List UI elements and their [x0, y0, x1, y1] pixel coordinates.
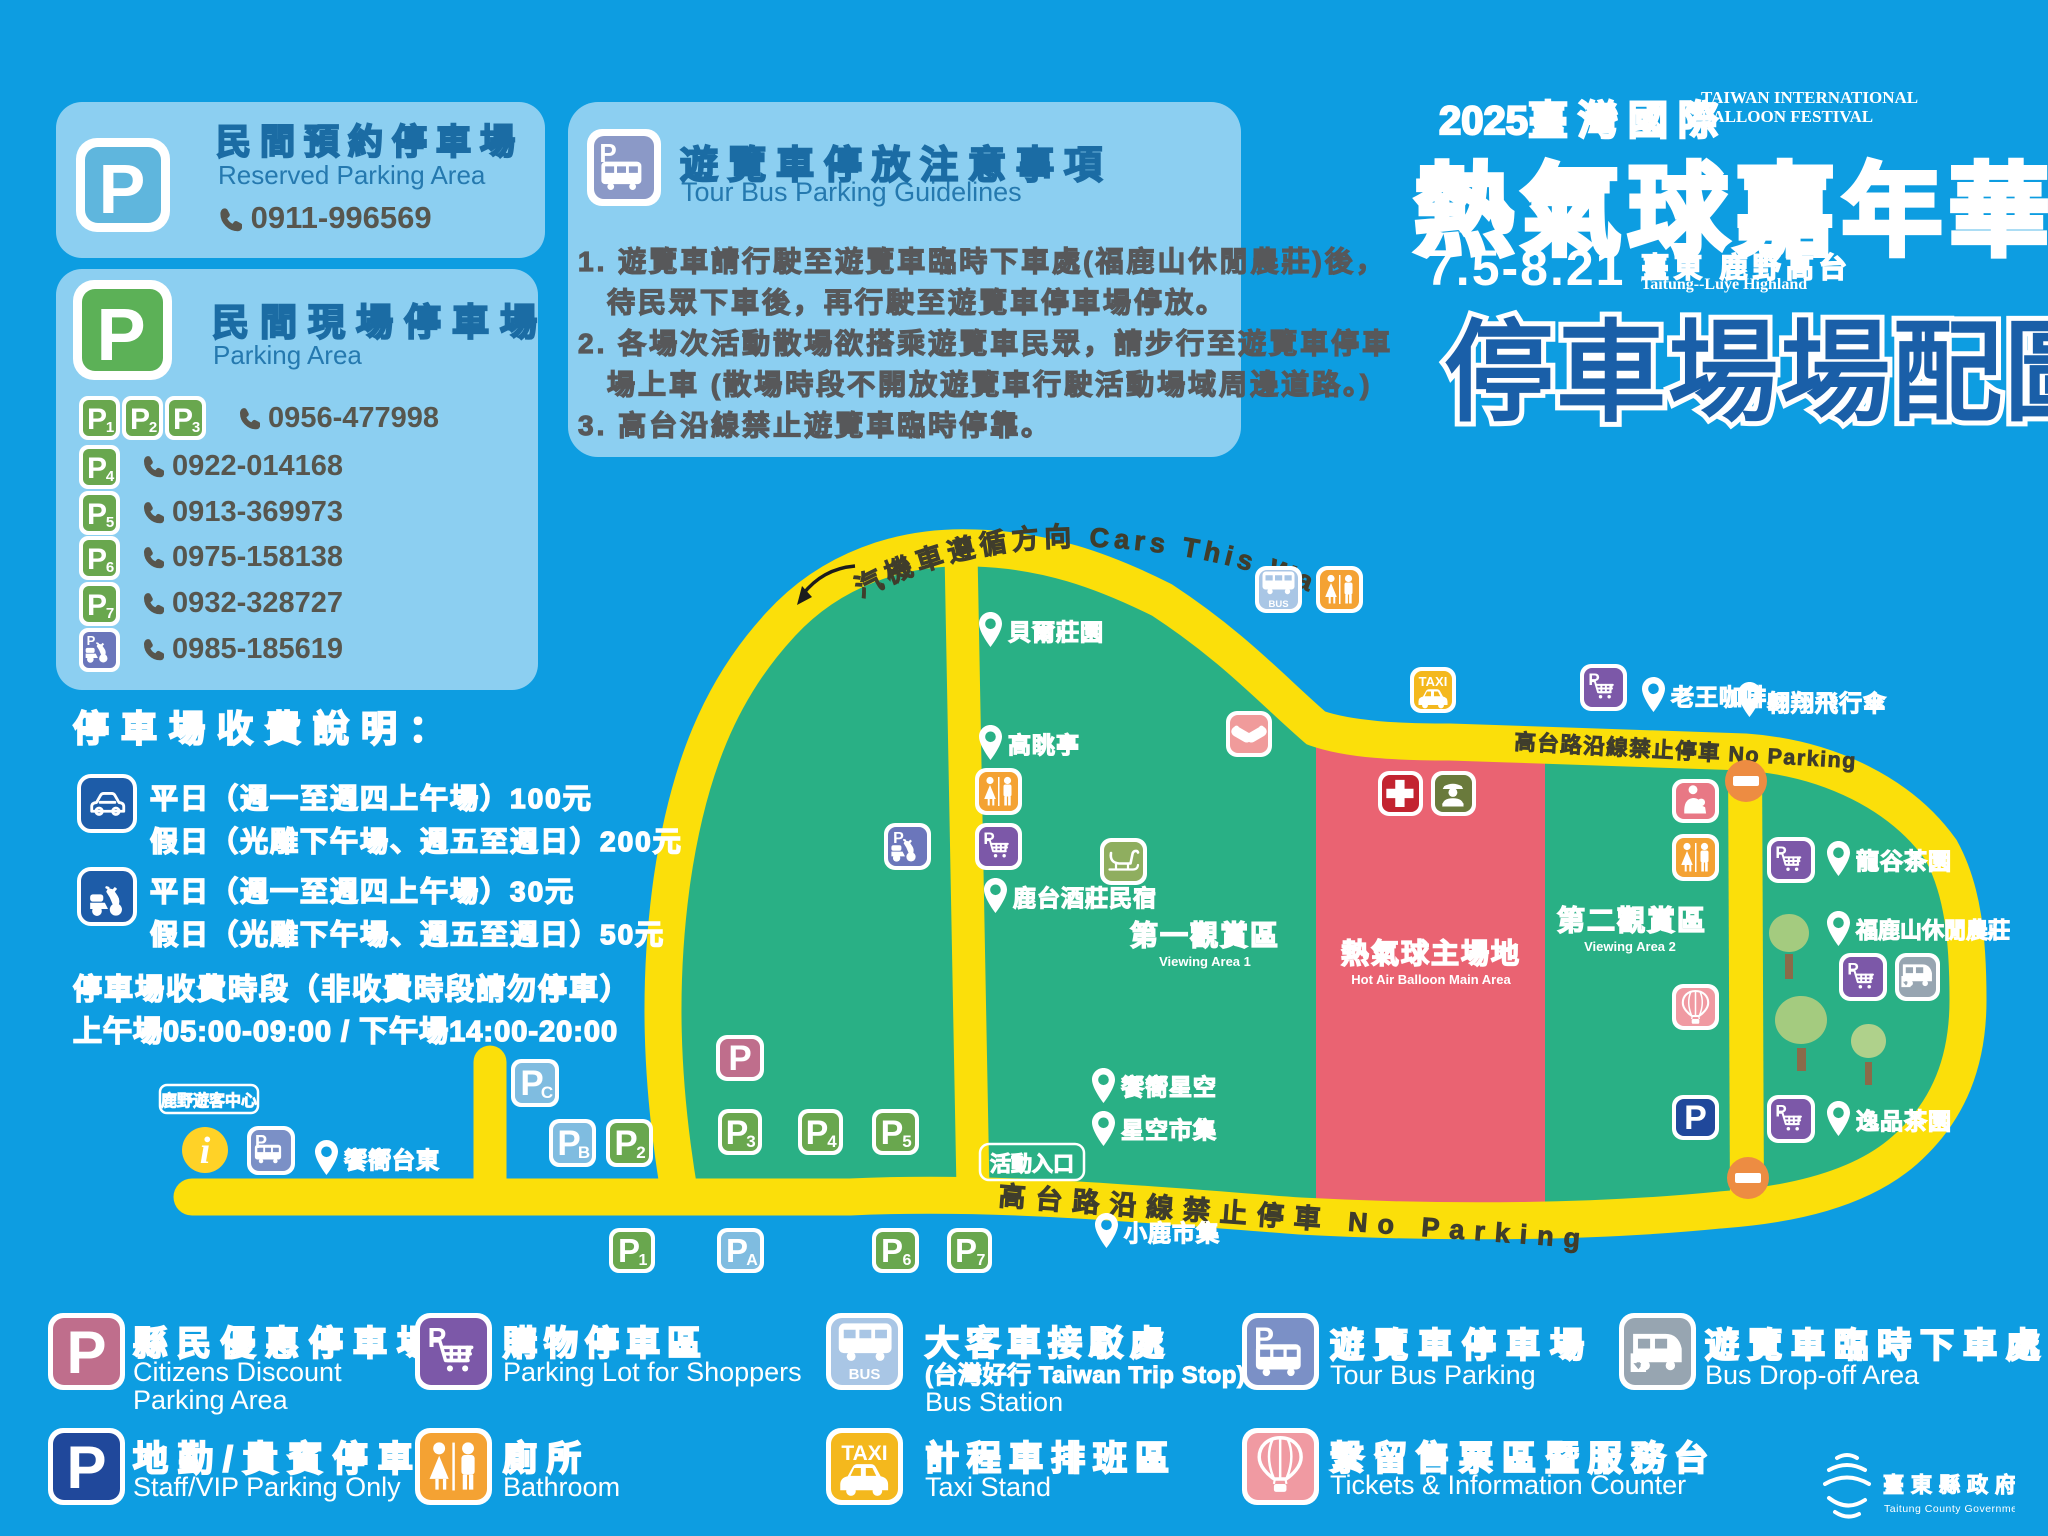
svg-text:6: 6	[106, 559, 114, 576]
svg-text:P: P	[728, 1039, 751, 1078]
svg-text:3: 3	[746, 1132, 755, 1151]
svg-text:C: C	[541, 1083, 553, 1102]
svg-text:P: P	[806, 1114, 829, 1152]
svg-text:A: A	[746, 1252, 758, 1269]
svg-text:臺東縣政府: 臺東縣政府	[1883, 1473, 2015, 1497]
svg-text:4: 4	[106, 468, 115, 485]
svg-text:BUS: BUS	[1268, 599, 1288, 610]
svg-text:7: 7	[106, 605, 114, 622]
svg-text:B: B	[578, 1143, 590, 1162]
svg-text:2: 2	[636, 1143, 645, 1162]
svg-text:翱翔飛行傘: 翱翔飛行傘	[1767, 690, 1887, 716]
svg-text:P: P	[881, 1232, 903, 1269]
svg-text:P: P	[99, 150, 146, 228]
svg-text:P: P	[87, 589, 107, 622]
svg-text:小鹿市集: 小鹿市集	[1124, 1220, 1220, 1246]
svg-text:P: P	[983, 829, 994, 848]
svg-text:P: P	[66, 1319, 106, 1386]
svg-text:P: P	[87, 543, 107, 576]
svg-text:P: P	[130, 403, 150, 436]
svg-text:5: 5	[106, 514, 114, 531]
svg-text:P: P	[726, 1114, 749, 1152]
svg-text:第二觀賞區: 第二觀賞區	[1557, 904, 1707, 936]
svg-text:活動入口: 活動入口	[990, 1153, 1074, 1176]
svg-text:P: P	[893, 830, 904, 847]
svg-text:鹿台酒莊民宿: 鹿台酒莊民宿	[1013, 885, 1157, 911]
svg-text:熱氣球主場地: 熱氣球主場地	[1341, 938, 1521, 969]
svg-text:6: 6	[903, 1252, 912, 1269]
svg-text:P: P	[1775, 1102, 1786, 1121]
svg-text:高眺亭: 高眺亭	[1008, 732, 1080, 758]
svg-text:P: P	[173, 403, 193, 436]
svg-text:TAXI: TAXI	[1419, 674, 1448, 689]
svg-text:P: P	[87, 498, 107, 531]
svg-text:鹿野遊客中心: 鹿野遊客中心	[161, 1091, 257, 1110]
svg-text:星空市集: 星空市集	[1121, 1117, 1217, 1143]
svg-text:TAXI: TAXI	[841, 1442, 887, 1465]
svg-text:Viewing Area 2: Viewing Area 2	[1584, 939, 1676, 954]
svg-text:5: 5	[902, 1132, 911, 1151]
svg-text:龍谷茶園: 龍谷茶園	[1856, 848, 1952, 874]
svg-text:貝爾莊園: 貝爾莊園	[1008, 619, 1104, 645]
svg-text:i: i	[200, 1130, 211, 1172]
svg-text:Taitung County Government: Taitung County Government	[1884, 1503, 2015, 1515]
svg-text:P: P	[66, 1434, 106, 1501]
svg-text:P: P	[1775, 843, 1786, 862]
svg-text:Hot Air Balloon Main Area: Hot Air Balloon Main Area	[1351, 972, 1511, 987]
svg-text:Viewing Area 1: Viewing Area 1	[1159, 954, 1251, 969]
svg-text:3: 3	[192, 419, 200, 436]
svg-text:P: P	[87, 403, 107, 436]
svg-text:2: 2	[149, 419, 157, 436]
svg-text:逸品茶園: 逸品茶園	[1856, 1108, 1952, 1134]
svg-text:BUS: BUS	[849, 1366, 881, 1383]
svg-text:7: 7	[977, 1252, 986, 1269]
svg-text:P: P	[87, 452, 107, 485]
svg-text:1: 1	[639, 1252, 648, 1269]
svg-text:P: P	[96, 293, 145, 376]
svg-text:P: P	[618, 1232, 640, 1269]
svg-text:饗嚮台東: 饗嚮台東	[344, 1147, 440, 1173]
svg-text:1: 1	[106, 419, 114, 436]
svg-text:P: P	[1847, 960, 1858, 979]
svg-text:P: P	[1684, 1099, 1707, 1137]
svg-text:P: P	[881, 1114, 904, 1152]
svg-text:4: 4	[827, 1132, 837, 1151]
svg-text:第一觀賞區: 第一觀賞區	[1130, 919, 1280, 951]
svg-text:饗嚮星空: 饗嚮星空	[1121, 1074, 1217, 1100]
svg-text:P: P	[614, 1124, 637, 1163]
svg-text:P: P	[87, 633, 96, 648]
svg-text:停車場場配圖: 停車場場配圖	[1444, 312, 2048, 435]
svg-text:P: P	[955, 1232, 977, 1269]
svg-text:P: P	[726, 1232, 748, 1269]
svg-text:福鹿山休閒農莊: 福鹿山休閒農莊	[1855, 918, 2010, 943]
svg-text:P: P	[1588, 670, 1599, 689]
